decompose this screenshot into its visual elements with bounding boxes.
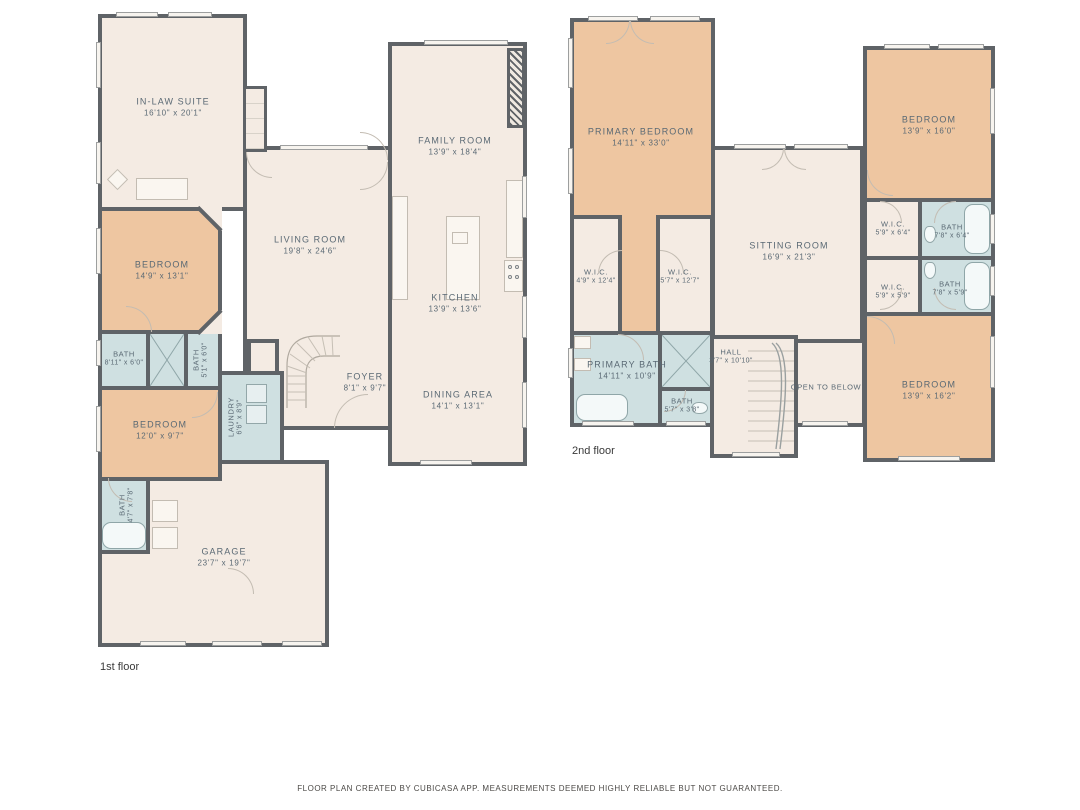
label-open-to-below: OPEN TO BELOW <box>791 383 861 392</box>
garage-storage <box>152 527 178 549</box>
window <box>280 145 368 150</box>
window <box>522 382 527 428</box>
curved-staircase <box>284 328 342 410</box>
window <box>568 148 573 194</box>
window <box>734 144 786 149</box>
window <box>96 228 101 274</box>
window <box>212 641 262 646</box>
stove <box>504 260 523 292</box>
window <box>568 348 573 378</box>
bathtub <box>102 522 146 549</box>
burner <box>515 275 519 279</box>
window <box>884 44 930 49</box>
window <box>140 641 186 646</box>
label-wic-1: W.I.C.4'9" x 12'4" <box>576 268 615 285</box>
window <box>794 144 848 149</box>
window <box>96 340 101 366</box>
window <box>990 266 995 296</box>
label-bedroom-br: BEDROOM13'9" x 16'2" <box>902 380 956 401</box>
label-sitting-room: SITTING ROOM16'9" x 21'3" <box>749 241 828 262</box>
washer <box>246 384 267 403</box>
window <box>990 336 995 388</box>
label-in-law-suite: IN-LAW SUITE16'10" x 20'1" <box>136 97 209 118</box>
burner <box>515 265 519 269</box>
island-sink <box>452 232 468 244</box>
label-living-room: LIVING ROOM19'8" x 24'6" <box>274 235 346 256</box>
vanity-sink <box>574 336 591 349</box>
kitchen-island <box>446 216 480 300</box>
label-foyer: FOYER8'1" x 9'7" <box>344 372 387 393</box>
window <box>420 460 472 465</box>
primary-bathtub <box>576 394 628 421</box>
label-bath-f2-2: BATH7'8" x 5'9" <box>932 280 967 297</box>
window <box>666 421 706 426</box>
window <box>732 452 780 457</box>
window <box>424 40 508 45</box>
window <box>990 88 995 134</box>
label-primary-bedroom: PRIMARY BEDROOM14'11" x 33'0" <box>588 127 694 148</box>
window <box>582 421 634 426</box>
burner <box>508 275 512 279</box>
label-bath-1: BATH8'11" x 6'0" <box>105 350 144 367</box>
primary-corridor <box>618 211 660 341</box>
label-bath-2: BATH5'1" x 6'0" <box>192 342 209 377</box>
window <box>282 641 322 646</box>
pantry-cabinets <box>392 196 408 300</box>
dryer <box>246 405 267 424</box>
window <box>96 406 101 452</box>
disclaimer-text: FLOOR PLAN CREATED BY CUBICASA APP. MEAS… <box>0 784 1080 793</box>
label-family-room: FAMILY ROOM13'9" x 18'4" <box>418 136 492 157</box>
window <box>990 214 995 244</box>
bathtub <box>964 262 990 310</box>
window <box>96 42 101 88</box>
window <box>96 142 101 184</box>
window <box>568 38 573 88</box>
under-stair-closet <box>247 339 279 375</box>
label-wic-3: W.I.C.5'9" x 6'4" <box>875 220 910 237</box>
label-laundry: LAUNDRY6'6" x 8'9" <box>227 397 244 437</box>
label-garage: GARAGE23'7" x 19'7" <box>198 547 251 568</box>
label-bath-f2-3: BATH5'7" x 3'8" <box>664 397 699 414</box>
window <box>898 456 960 461</box>
label-kitchen: KITCHEN13'9" x 13'6" <box>429 293 482 314</box>
floor-plan-canvas: IN-LAW SUITE16'10" x 20'1" FAMILY ROOM13… <box>0 0 1080 810</box>
label-wic-2: W.I.C.5'7" x 12'7" <box>660 268 699 285</box>
window <box>522 176 527 218</box>
shower-x-icon <box>150 334 184 386</box>
burner <box>508 265 512 269</box>
first-floor-caption: 1st floor <box>100 661 139 673</box>
label-bedroom-tr: BEDROOM13'9" x 16'0" <box>902 115 956 136</box>
label-bedroom-1: BEDROOM14'9" x 13'1" <box>135 260 189 281</box>
room-primary-bedroom <box>570 18 715 219</box>
second-floor-caption: 2nd floor <box>572 445 615 457</box>
window <box>116 12 158 17</box>
kitchenette-counter <box>136 178 188 200</box>
label-primary-bath: PRIMARY BATH14'11" x 10'9" <box>587 360 667 381</box>
label-bath-f2-1: BATH7'8" x 6'4" <box>934 223 969 240</box>
window <box>522 296 527 338</box>
label-dining-area: DINING AREA14'1" x 13'1" <box>423 390 493 411</box>
label-wic-4: W.I.C.5'9" x 5'9" <box>875 283 910 300</box>
staircase <box>746 341 796 453</box>
label-bath-3: BATH4'7" x 7'8" <box>118 487 135 522</box>
window <box>588 16 638 21</box>
in-law-closet <box>243 86 267 152</box>
toilet <box>924 262 936 279</box>
label-bedroom-2: BEDROOM12'0" x 9'7" <box>133 420 187 441</box>
window <box>802 421 848 426</box>
window <box>168 12 212 17</box>
garage-storage <box>152 500 178 522</box>
window <box>650 16 700 21</box>
shower-1 <box>146 330 188 390</box>
shower-x-icon <box>662 335 710 387</box>
fireplace <box>507 48 525 128</box>
kitchen-counter <box>506 180 523 258</box>
window <box>938 44 984 49</box>
label-hall: HALL3'7" x 10'10" <box>709 348 753 365</box>
